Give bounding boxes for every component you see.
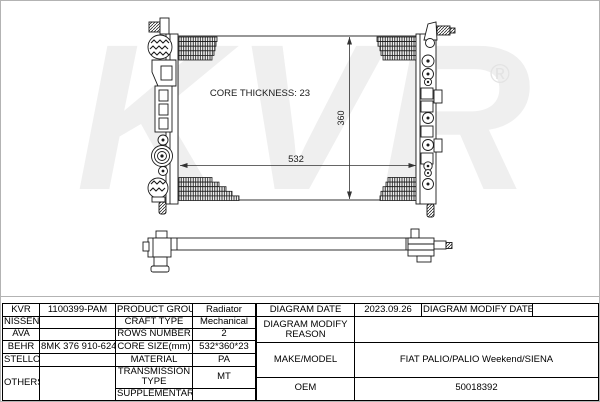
spec-value-cell: PA [193,354,256,367]
spec-table: KVR 1100399-PAM PRODUCT GROUP Radiator N… [2,303,599,401]
spec-label-cell: TRANSMISSION TYPE [116,367,193,389]
side-view-connector [434,241,446,249]
left-mount-bolt [149,22,160,32]
spec-label-cell: MATERIAL [116,354,193,367]
spec-value-cell [193,388,256,400]
right-bottom-pin [427,204,434,217]
dim-height [347,37,352,199]
core-fins-top-right [377,37,416,60]
brand-code-cell [40,367,116,401]
diagram-table-divider [0,296,600,297]
table-row: OEM 50018392 [257,377,599,400]
brand-cell: OTHERS [3,367,40,401]
table-row: NISSENS CRAFT TYPE Mechanical [3,317,256,329]
spec-value-cell: 2 [193,329,256,341]
radiator-front-view: 360 532 CORE THICKNESS: 23 [148,18,455,217]
brand-code-cell [40,354,116,367]
dim-width-label: 532 [288,154,304,165]
table-row: AVA ROWS NUMBER 2 [3,329,256,341]
table-row: STELLOX MATERIAL PA [3,354,256,367]
diagram-modify-reason-label: DIAGRAM MODIFY REASON [257,317,355,343]
table-row: OTHERS TRANSMISSION TYPE MT [3,367,256,389]
diagram-date-label: DIAGRAM DATE [257,304,355,317]
radiator-technical-drawing: 360 532 CORE THICKNESS: 23 [0,0,600,300]
diagram-modify-reason-value [355,317,599,343]
dim-height-label: 360 [336,110,346,125]
brand-cell: BEHR [3,341,40,354]
spec-value-cell: Mechanical [193,317,256,329]
oem-value: 50018392 [355,377,599,400]
datasheet-page: { "watermark": { "brand": "KVR", "regist… [0,0,600,402]
table-row: DIAGRAM MODIFY REASON [257,317,599,343]
core-fins-bottom-left [179,178,239,201]
diagram-date-value: 2023.09.26 [355,304,422,317]
core-thickness-label: CORE THICKNESS: 23 [210,88,310,99]
brand-code-cell [40,317,116,329]
cross-reference-table: KVR 1100399-PAM PRODUCT GROUP Radiator N… [2,303,256,401]
spec-label-cell: SUPPLEMENTARY [116,388,193,400]
right-mount-bolt [437,26,450,35]
spec-value-cell: MT [193,367,256,389]
radiator-side-view [143,229,452,272]
spec-label-cell: PRODUCT GROUP [116,304,193,317]
spec-label-cell: CRAFT TYPE [116,317,193,329]
table-row: DIAGRAM DATE 2023.09.26 DIAGRAM MODIFY D… [257,304,599,317]
brand-code-cell: 1100399-PAM [40,304,116,317]
make-model-value: FIAT PALIO/PALIO Weekend/SIENA [355,343,599,377]
table-row: MAKE/MODEL FIAT PALIO/PALIO Weekend/SIEN… [257,343,599,377]
brand-code-cell [40,329,116,341]
core-fins-top-left [179,37,217,60]
brand-cell: AVA [3,329,40,341]
brand-cell: KVR [3,304,40,317]
core-fins-bottom-right [380,178,416,201]
side-view-right-fitting [408,229,452,262]
spec-value-cell: 532*360*23 [193,341,256,354]
right-tank [416,22,455,217]
table-row: KVR 1100399-PAM PRODUCT GROUP Radiator [3,304,256,317]
left-bottom-pin [159,202,166,214]
side-view-left-fitting [143,231,171,272]
table-row: BEHR 8MK 376 910-624 CORE SIZE(mm) 532*3… [3,341,256,354]
drain-plug [152,146,173,167]
make-model-label: MAKE/MODEL [257,343,355,377]
diagram-modify-date-label: DIAGRAM MODIFY DATE [422,304,533,317]
diagram-modify-date-value [533,304,599,317]
brand-code-cell: 8MK 376 910-624 [40,341,116,354]
diagram-info-table: DIAGRAM DATE 2023.09.26 DIAGRAM MODIFY D… [256,303,599,401]
spec-label-cell: CORE SIZE(mm) [116,341,193,354]
core-outline [178,36,416,200]
brand-cell: NISSENS [3,317,40,329]
left-tank [148,18,178,214]
brand-cell: STELLOX [3,354,40,367]
oem-label: OEM [257,377,355,400]
spec-value-cell: Radiator [193,304,256,317]
spec-label-cell: ROWS NUMBER [116,329,193,341]
